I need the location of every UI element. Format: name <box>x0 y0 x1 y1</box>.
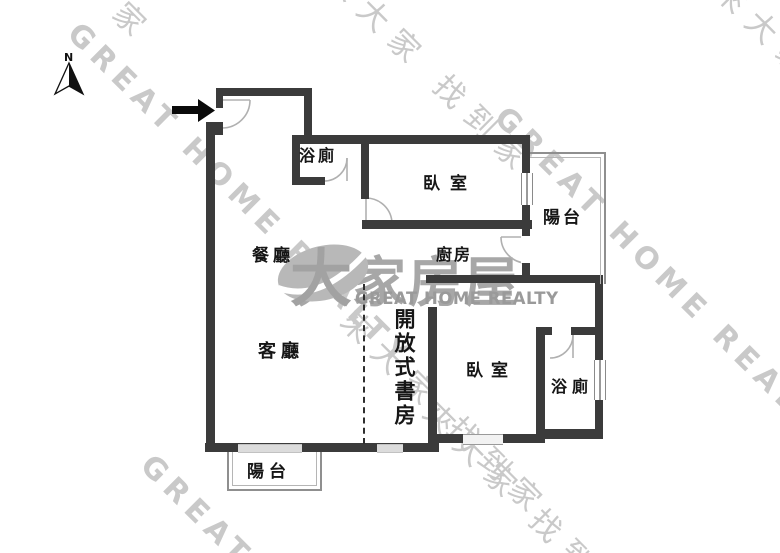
wall-bath1-bottom <box>292 177 325 185</box>
wall-entry-stub <box>216 94 223 108</box>
brand-logo-latin: GREAT HOME REALTY <box>355 289 559 308</box>
window-bedroom1-balcony <box>521 173 533 205</box>
room-label-bedroom-top: 臥室 <box>423 169 477 194</box>
watermark-cjk: 來大家 找到家 <box>332 298 562 528</box>
room-label-balcony-bottom: 陽台 <box>247 457 291 482</box>
room-label-dining: 餐廳 <box>252 241 294 266</box>
room-label-bedroom-bottom: 臥室 <box>466 356 516 381</box>
room-label-living: 客廳 <box>258 337 304 363</box>
wall-entry-right <box>304 88 312 138</box>
window-living-bottom <box>377 444 403 453</box>
room-label-balcony-right: 陽台 <box>543 203 583 228</box>
north-label: N <box>64 51 73 64</box>
watermark-cjk: 家 <box>104 0 166 52</box>
door-opening-balcony <box>521 236 531 263</box>
wall-bath2-top-left <box>536 327 552 335</box>
wall-entry-top <box>216 88 312 96</box>
wall-bath2-bottom <box>536 429 603 439</box>
window-bath2-right <box>594 360 606 400</box>
north-arrow-icon: N <box>55 51 83 94</box>
wall-bath2-left <box>536 327 545 439</box>
room-label-bath-bottom: 浴廁 <box>551 373 593 397</box>
room-label-kitchen: 廚房 <box>436 241 472 265</box>
wall-bed1-bottom <box>362 220 532 229</box>
watermark-cjk: 來大家 找到家 <box>706 0 780 198</box>
window-living-balcony-door <box>238 444 302 453</box>
wall-right-lower <box>595 275 603 435</box>
entry-arrow-icon <box>172 99 215 122</box>
watermark-cjk: 來大家 找到家 <box>414 390 644 553</box>
wall-left <box>206 122 215 452</box>
wall-study-divider <box>428 307 437 440</box>
floor-plan: GREAT HOME REALTY GREAT HOME REALTY GREA… <box>0 0 780 553</box>
wall-bath1-divider <box>361 135 369 199</box>
room-label-study: 開放式書房 <box>389 308 419 438</box>
study-dashed-partition <box>363 284 365 444</box>
room-label-bath-top: 浴廁 <box>299 142 337 166</box>
watermark-cjk: 來大家 找到家 <box>318 0 548 186</box>
window-bedroom2-bottom <box>463 434 503 445</box>
